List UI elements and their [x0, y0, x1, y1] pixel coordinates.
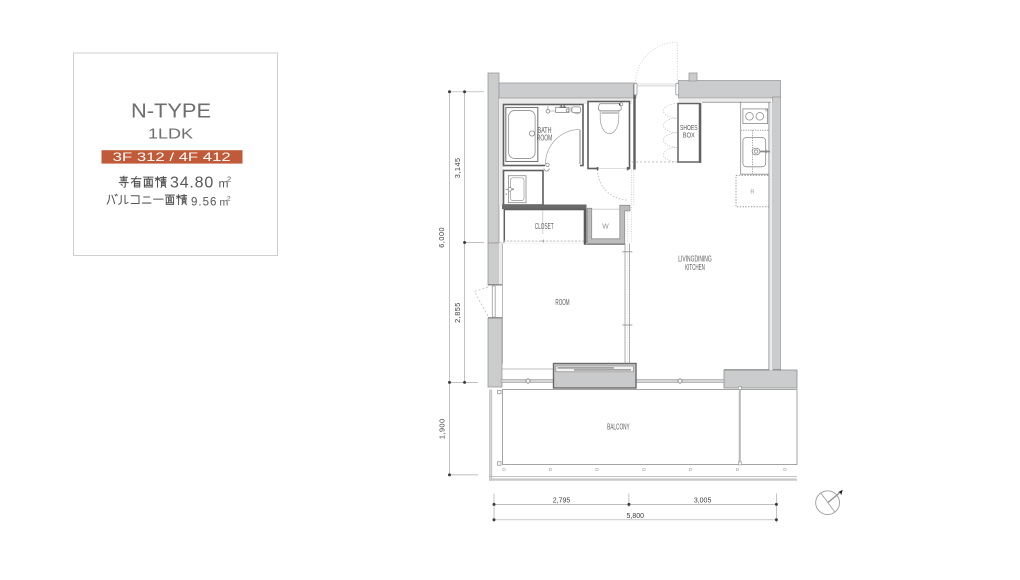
svg-text:1LDK: 1LDK — [148, 127, 193, 143]
svg-text:9.56: 9.56 — [191, 196, 217, 208]
svg-text:BALCONY: BALCONY — [607, 423, 630, 432]
svg-text:3F 312 / 4F 412: 3F 312 / 4F 412 — [113, 150, 231, 164]
svg-text:D: D — [783, 467, 787, 473]
svg-text:2: 2 — [227, 195, 231, 202]
svg-text:N-TYPE: N-TYPE — [131, 101, 211, 123]
svg-text:6,000: 6,000 — [437, 227, 446, 248]
svg-text:D: D — [549, 467, 553, 473]
svg-text:2: 2 — [227, 175, 231, 184]
svg-text:2,795: 2,795 — [553, 498, 571, 505]
svg-text:ROOM: ROOM — [537, 133, 553, 142]
svg-text:D: D — [736, 467, 740, 473]
svg-text:BOX: BOX — [683, 130, 695, 139]
svg-text:5,800: 5,800 — [627, 513, 645, 520]
svg-text:D: D — [502, 467, 506, 473]
svg-text:CLOSET: CLOSET — [535, 222, 554, 231]
svg-text:KITCHEN: KITCHEN — [685, 263, 705, 272]
svg-text:W: W — [602, 224, 609, 231]
svg-text:ROOM: ROOM — [555, 298, 569, 307]
svg-text:D: D — [595, 467, 599, 473]
svg-text:3,005: 3,005 — [694, 498, 712, 505]
svg-text:1,900: 1,900 — [438, 418, 447, 439]
svg-text:34.80: 34.80 — [170, 175, 214, 192]
svg-text:R: R — [750, 190, 754, 196]
svg-text:D: D — [642, 467, 646, 473]
svg-text:2,855: 2,855 — [453, 302, 462, 323]
svg-text:D: D — [689, 467, 693, 473]
svg-text:3,145: 3,145 — [453, 157, 462, 178]
